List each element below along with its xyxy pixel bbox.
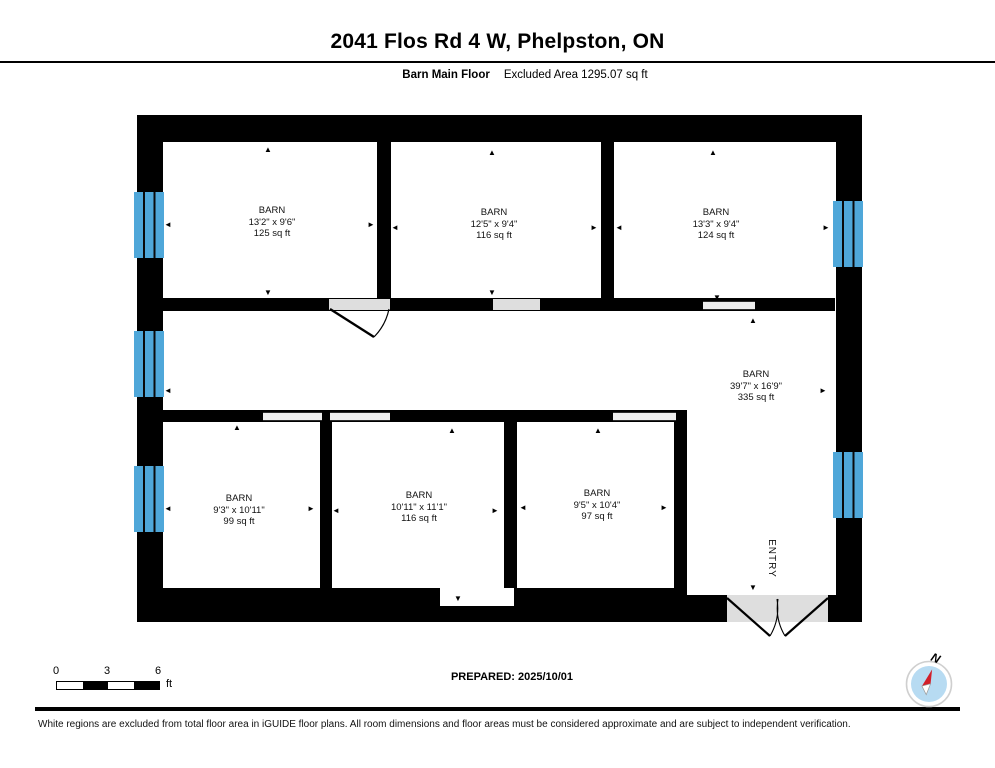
scale-bar-segments xyxy=(56,681,160,690)
wall-room1-room2 xyxy=(377,142,391,311)
room-area: 335 sq ft xyxy=(686,392,826,404)
room-dimensions: 13'3" x 9'4" xyxy=(646,219,786,231)
subtitle-row: Barn Main Floor Excluded Area 1295.07 sq… xyxy=(225,69,825,81)
dimension-arrow-up-icon: ▲ xyxy=(708,149,718,157)
room-name: BARN xyxy=(424,207,564,219)
wall-room2-room3 xyxy=(601,142,614,311)
wall-room4-room5 xyxy=(320,410,332,595)
page-title: 2041 Flos Rd 4 W, Phelpston, ON xyxy=(0,30,995,54)
dimension-arrow-up-icon: ▲ xyxy=(263,146,273,154)
excluded-area-label: Excluded Area 1295.07 sq ft xyxy=(504,69,648,81)
footer-divider xyxy=(35,707,960,711)
dimension-arrow-down-icon: ▼ xyxy=(712,294,722,302)
room-area: 97 sq ft xyxy=(527,511,667,523)
door-threshold xyxy=(329,299,390,310)
dimension-arrow-left-icon: ◄ xyxy=(163,221,173,229)
wall-above-bottom-rooms xyxy=(163,410,686,422)
wall-opening xyxy=(703,301,755,310)
room-name: BARN xyxy=(527,488,667,500)
dimension-arrow-right-icon: ► xyxy=(659,504,669,512)
dimension-arrow-right-icon: ► xyxy=(306,505,316,513)
wall-opening xyxy=(330,412,390,421)
dimension-arrow-down-icon: ▼ xyxy=(232,589,242,597)
wall-room5-room6 xyxy=(504,410,517,595)
dimension-arrow-up-icon: ▲ xyxy=(232,424,242,432)
dimension-arrow-up-icon: ▲ xyxy=(447,427,457,435)
dimension-arrow-down-icon: ▼ xyxy=(748,584,758,592)
dimension-arrow-down-icon: ▼ xyxy=(593,587,603,595)
window-icon xyxy=(134,331,164,397)
room-dimensions: 9'5" x 10'4" xyxy=(527,500,667,512)
scale-unit-label: ft xyxy=(166,678,172,690)
north-label: N xyxy=(929,650,943,666)
wall-opening xyxy=(493,299,540,310)
window-icon xyxy=(134,466,164,532)
window-icon xyxy=(134,192,164,258)
room-label: BARN 9'5" x 10'4" 97 sq ft xyxy=(527,488,667,523)
room-label: BARN 10'11" x 11'1" 116 sq ft xyxy=(349,490,489,525)
room-dimensions: 12'5" x 9'4" xyxy=(424,219,564,231)
wall-opening xyxy=(613,412,676,421)
dimension-arrow-up-icon: ▲ xyxy=(748,317,758,325)
scale-tick-label: 3 xyxy=(97,665,117,677)
dimension-arrow-right-icon: ► xyxy=(490,507,500,515)
dimension-arrow-down-icon: ▼ xyxy=(453,595,463,603)
dimension-arrow-left-icon: ◄ xyxy=(163,387,173,395)
room-name: BARN xyxy=(349,490,489,502)
dimension-arrow-down-icon: ▼ xyxy=(263,289,273,297)
room-dimensions: 9'3" x 10'11" xyxy=(169,505,309,517)
dimension-arrow-left-icon: ◄ xyxy=(614,224,624,232)
room-area: 124 sq ft xyxy=(646,230,786,242)
scale-tick-label: 6 xyxy=(148,665,168,677)
floor-label: Barn Main Floor xyxy=(402,69,490,81)
room-label: BARN 13'3" x 9'4" 124 sq ft xyxy=(646,207,786,242)
dimension-arrow-right-icon: ► xyxy=(589,224,599,232)
room-dimensions: 13'2" x 9'6" xyxy=(202,217,342,229)
disclaimer-text: White regions are excluded from total fl… xyxy=(38,719,968,730)
room-label: BARN 39'7" x 16'9" 335 sq ft xyxy=(686,369,826,404)
dimension-arrow-left-icon: ◄ xyxy=(390,224,400,232)
wall-exterior-top xyxy=(137,115,862,142)
room-area: 116 sq ft xyxy=(424,230,564,242)
dimension-arrow-down-icon: ▼ xyxy=(487,289,497,297)
wall-opening xyxy=(263,412,322,421)
wall-room6-entry xyxy=(674,410,687,595)
door-swing-icon xyxy=(330,309,389,337)
dimension-arrow-left-icon: ◄ xyxy=(331,507,341,515)
window-icon xyxy=(833,452,863,518)
entry-label-text: ENTRY xyxy=(766,539,777,578)
dimension-arrow-up-icon: ▲ xyxy=(593,427,603,435)
room-name: BARN xyxy=(686,369,826,381)
dimension-arrow-right-icon: ► xyxy=(818,387,828,395)
room-label: BARN 12'5" x 9'4" 116 sq ft xyxy=(424,207,564,242)
room-label: BARN 9'3" x 10'11" 99 sq ft xyxy=(169,493,309,528)
room-area: 116 sq ft xyxy=(349,513,489,525)
entry-label: ENTRY xyxy=(764,520,778,596)
dimension-arrow-right-icon: ► xyxy=(366,221,376,229)
dimension-arrow-right-icon: ► xyxy=(821,224,831,232)
compass-icon: N xyxy=(907,650,952,707)
dimension-arrow-left-icon: ◄ xyxy=(518,504,528,512)
header-divider xyxy=(0,61,995,63)
entry-door-threshold xyxy=(727,595,828,622)
window-icon xyxy=(833,201,863,267)
scale-tick-label: 0 xyxy=(46,665,66,677)
room-dimensions: 10'11" x 11'1" xyxy=(349,502,489,514)
dimension-arrow-left-icon: ◄ xyxy=(163,505,173,513)
wall-exterior-right xyxy=(836,115,862,622)
room-name: BARN xyxy=(169,493,309,505)
floorplan-page: 2041 Flos Rd 4 W, Phelpston, ON Barn Mai… xyxy=(0,0,995,768)
room-dimensions: 39'7" x 16'9" xyxy=(686,381,826,393)
room-label: BARN 13'2" x 9'6" 125 sq ft xyxy=(202,205,342,240)
wall-notch xyxy=(440,588,514,606)
room-name: BARN xyxy=(202,205,342,217)
prepared-date: PREPARED: 2025/10/01 xyxy=(362,671,662,683)
room-area: 99 sq ft xyxy=(169,516,309,528)
dimension-arrow-up-icon: ▲ xyxy=(487,149,497,157)
room-area: 125 sq ft xyxy=(202,228,342,240)
room-name: BARN xyxy=(646,207,786,219)
